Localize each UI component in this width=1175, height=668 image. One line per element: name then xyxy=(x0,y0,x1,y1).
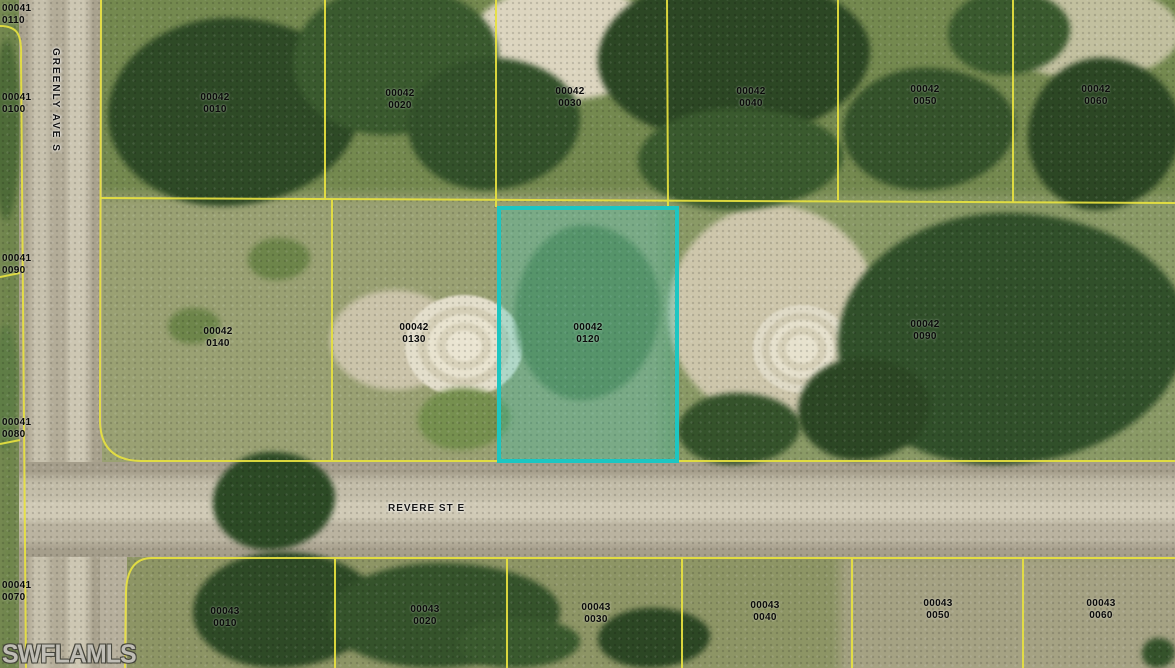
parcel-label: 00042 0130 xyxy=(399,322,428,346)
parcel-label: 00043 0010 xyxy=(210,606,239,630)
parcel-label: 00043 0030 xyxy=(581,602,610,626)
parcel-label: 00041 0100 xyxy=(2,92,31,116)
tree-cluster xyxy=(1028,58,1175,210)
parcel-label: 00043 0060 xyxy=(1086,598,1115,622)
parcel-label: 00041 0070 xyxy=(2,580,31,604)
parcel-label: 00043 0040 xyxy=(750,600,779,624)
parcel-label-highlighted: 00042 0120 xyxy=(573,322,602,346)
street-label-revere-st-e: REVERE ST E xyxy=(388,503,465,514)
parcel-label: 00041 0090 xyxy=(2,253,31,277)
parcel-label: 00042 0050 xyxy=(910,84,939,108)
road-revere-st xyxy=(19,462,1175,557)
parcel-label: 00043 0050 xyxy=(923,598,952,622)
vegetation-region xyxy=(840,555,1175,668)
street-label-greenly-ave-s: GREENLY AVE S xyxy=(50,48,61,153)
mls-watermark: SWFLAMLS xyxy=(2,639,136,668)
aerial-parcel-map: 00041 0110 00041 0100 00041 0090 00041 0… xyxy=(0,0,1175,668)
parcel-label: 00042 0040 xyxy=(736,86,765,110)
parcel-label: 00041 0110 xyxy=(2,3,31,27)
parcel-label: 00041 0080 xyxy=(2,417,31,441)
parcel-label: 00042 0060 xyxy=(1081,84,1110,108)
parcel-label: 00042 0030 xyxy=(555,86,584,110)
parcel-label: 00042 0010 xyxy=(200,92,229,116)
parcel-label: 00042 0090 xyxy=(910,319,939,343)
parcel-label: 00042 0020 xyxy=(385,88,414,112)
parcel-label: 00042 0140 xyxy=(203,326,232,350)
parcel-label: 00043 0020 xyxy=(410,604,439,628)
